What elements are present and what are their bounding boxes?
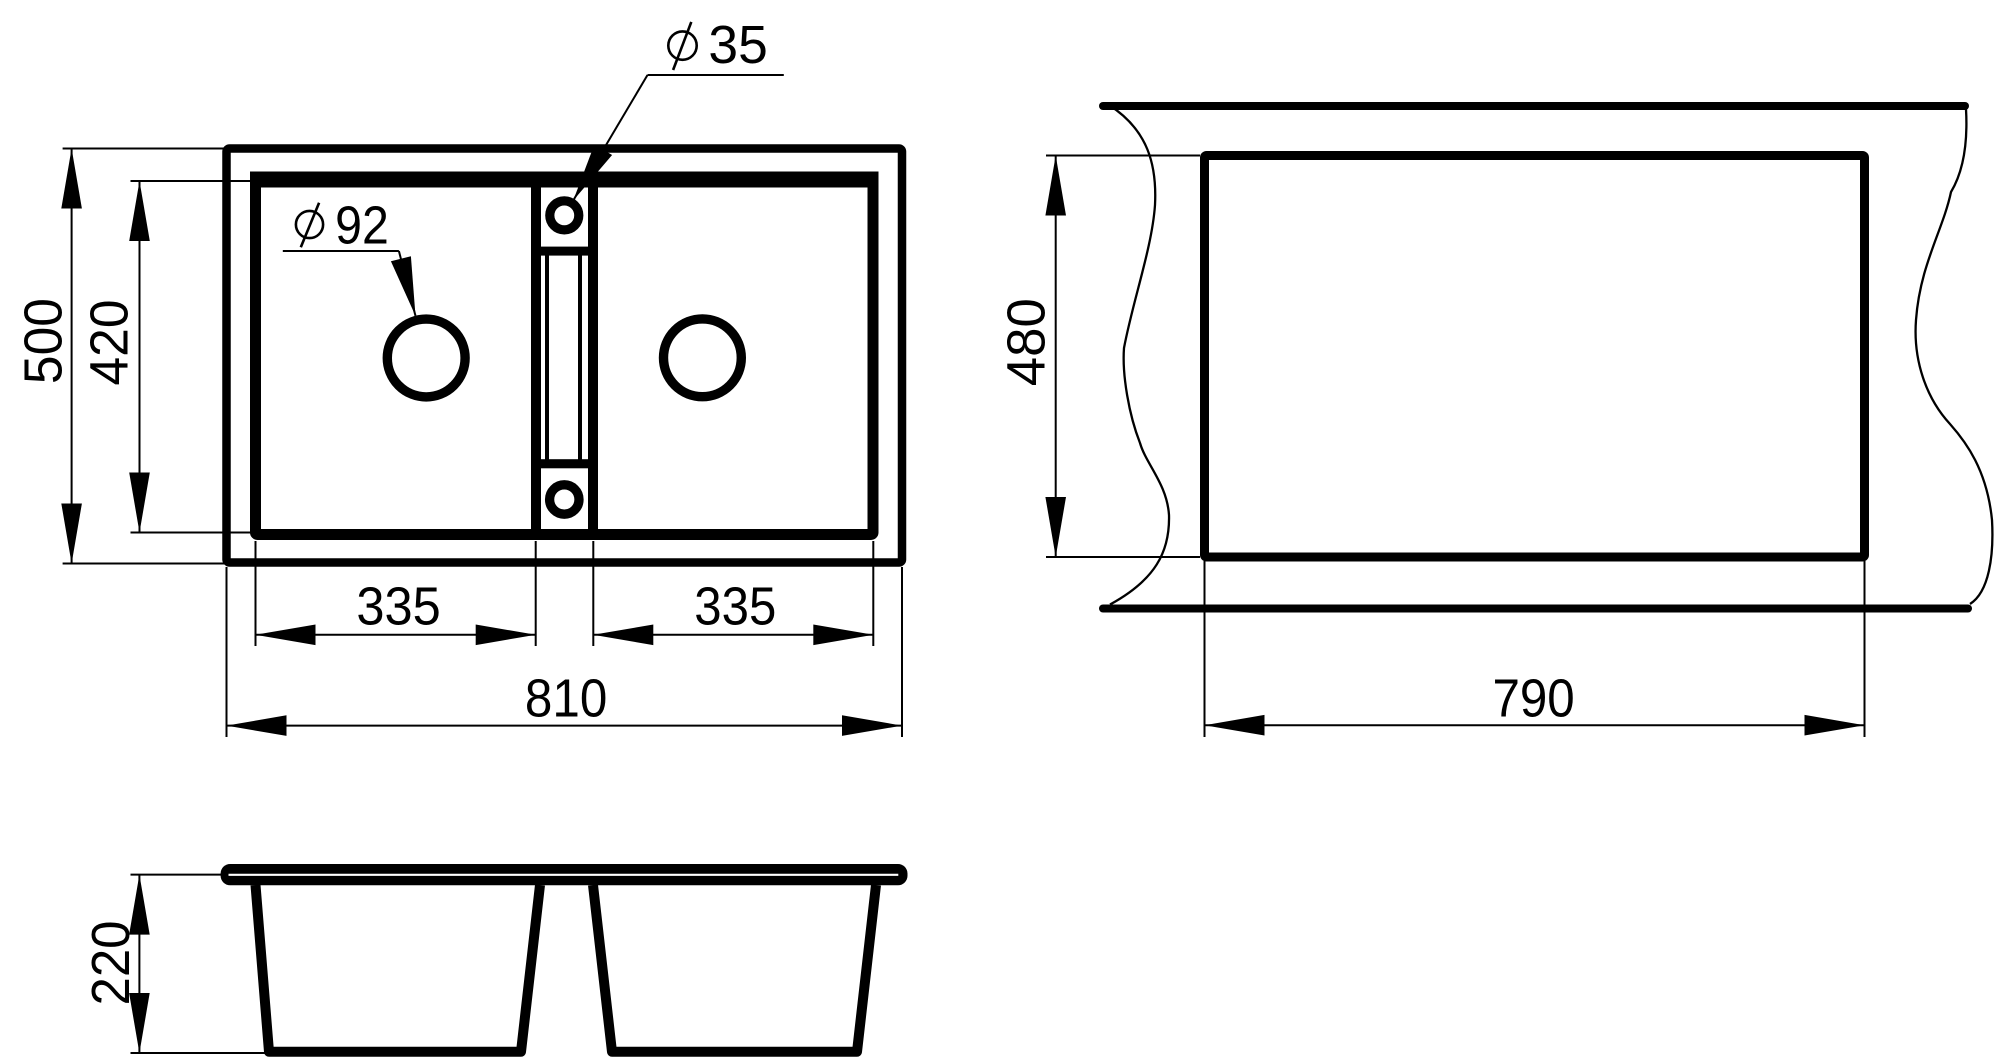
svg-text:480: 480 (996, 298, 1056, 386)
svg-text:420: 420 (80, 300, 140, 386)
svg-text:500: 500 (14, 298, 74, 384)
svg-text:35: 35 (708, 15, 767, 75)
svg-text:335: 335 (356, 576, 440, 636)
svg-text:810: 810 (525, 668, 607, 728)
svg-text:220: 220 (81, 921, 141, 1006)
svg-text:92: 92 (335, 195, 389, 255)
svg-text:335: 335 (694, 577, 776, 637)
svg-text:790: 790 (1492, 668, 1574, 728)
